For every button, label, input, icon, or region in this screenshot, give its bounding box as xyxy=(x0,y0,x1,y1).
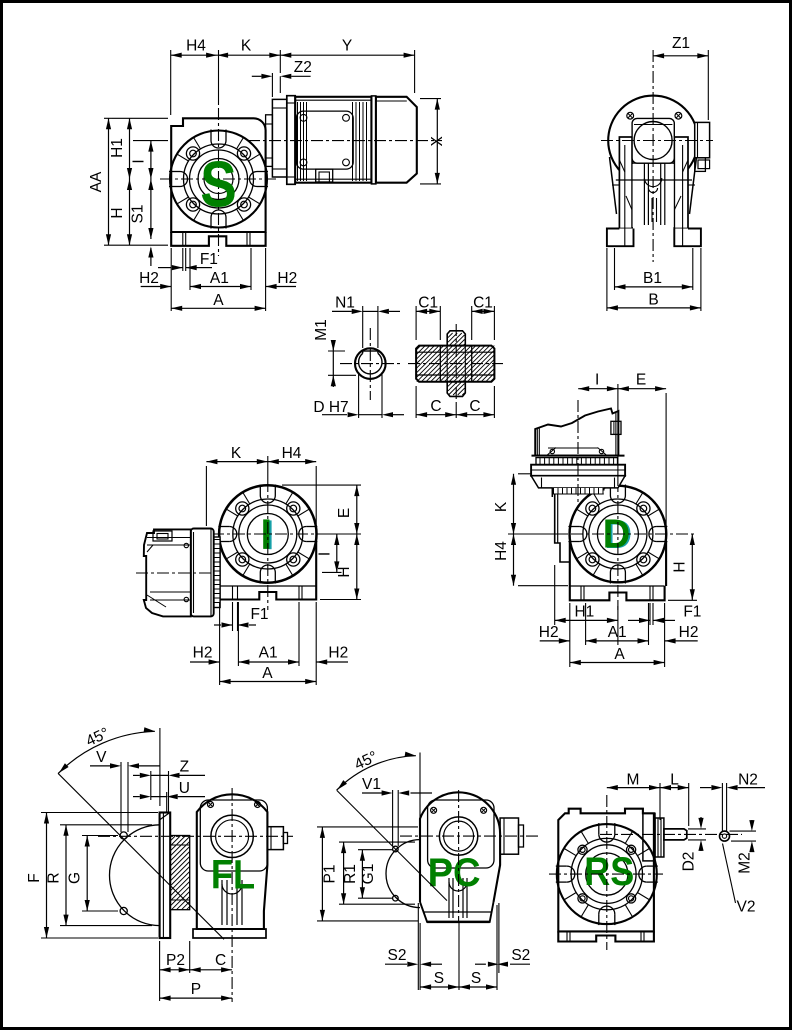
svg-text:H: H xyxy=(109,207,126,218)
svg-text:V1: V1 xyxy=(362,776,381,793)
svg-text:H4: H4 xyxy=(186,38,206,55)
svg-text:K: K xyxy=(231,445,242,462)
svg-text:Y: Y xyxy=(342,38,352,55)
svg-text:E: E xyxy=(336,508,353,518)
svg-text:H4: H4 xyxy=(493,541,510,561)
svg-text:L: L xyxy=(670,772,679,789)
svg-text:C: C xyxy=(215,952,226,969)
svg-text:G1: G1 xyxy=(360,864,377,885)
svg-text:P2: P2 xyxy=(166,952,185,969)
svg-text:K: K xyxy=(241,38,252,55)
svg-text:S: S xyxy=(434,970,444,987)
svg-text:C: C xyxy=(469,398,480,415)
svg-text:C1: C1 xyxy=(418,295,438,312)
svg-text:S2: S2 xyxy=(388,947,407,964)
svg-text:H2: H2 xyxy=(277,270,297,287)
svg-text:C1: C1 xyxy=(473,295,493,312)
svg-text:H1: H1 xyxy=(109,138,126,158)
svg-text:A1: A1 xyxy=(608,624,627,641)
svg-text:F1: F1 xyxy=(200,251,218,268)
svg-text:B: B xyxy=(648,292,658,309)
svg-text:H2: H2 xyxy=(328,645,348,662)
svg-text:G: G xyxy=(67,872,84,884)
svg-text:H: H xyxy=(336,566,353,577)
svg-text:H2: H2 xyxy=(193,645,213,662)
svg-text:S1: S1 xyxy=(130,205,147,224)
svg-text:F1: F1 xyxy=(250,606,268,623)
svg-text:S2: S2 xyxy=(511,947,530,964)
svg-text:D H7: D H7 xyxy=(313,399,348,416)
svg-text:D2: D2 xyxy=(681,852,698,872)
svg-text:P: P xyxy=(191,981,201,998)
svg-text:M2: M2 xyxy=(736,852,753,874)
svg-text:N1: N1 xyxy=(335,295,355,312)
svg-text:AA: AA xyxy=(88,171,105,192)
svg-text:I: I xyxy=(131,159,148,163)
svg-text:A: A xyxy=(614,646,625,663)
svg-text:S: S xyxy=(200,148,237,221)
svg-text:V: V xyxy=(96,749,107,766)
svg-text:N2: N2 xyxy=(738,772,758,789)
svg-text:E: E xyxy=(636,372,646,389)
svg-text:R: R xyxy=(46,872,63,883)
svg-text:H1: H1 xyxy=(574,604,594,621)
svg-text:F: F xyxy=(26,873,43,882)
svg-text:H2: H2 xyxy=(539,624,559,641)
svg-text:H4: H4 xyxy=(282,445,302,462)
svg-text:R1: R1 xyxy=(342,864,359,884)
svg-text:A1: A1 xyxy=(259,645,278,662)
svg-text:K: K xyxy=(493,501,510,512)
svg-text:A: A xyxy=(213,292,224,309)
svg-text:P1: P1 xyxy=(322,865,339,884)
svg-text:F1: F1 xyxy=(683,604,701,621)
svg-text:FL: FL xyxy=(211,852,255,898)
svg-text:Z2: Z2 xyxy=(294,59,312,76)
svg-text:S: S xyxy=(471,970,481,987)
svg-text:RS: RS xyxy=(584,850,634,894)
svg-text:H2: H2 xyxy=(679,624,699,641)
svg-text:I: I xyxy=(316,552,333,556)
svg-text:M: M xyxy=(627,772,640,789)
svg-text:A: A xyxy=(262,665,273,682)
svg-text:C: C xyxy=(430,398,441,415)
svg-text:I: I xyxy=(595,372,599,389)
svg-text:U: U xyxy=(179,780,190,797)
svg-text:H: H xyxy=(672,561,689,572)
svg-text:B1: B1 xyxy=(643,270,662,287)
svg-text:X: X xyxy=(429,135,446,146)
svg-text:Z: Z xyxy=(180,759,189,776)
svg-text:M1: M1 xyxy=(313,319,330,341)
svg-text:H2: H2 xyxy=(139,270,159,287)
svg-text:Z1: Z1 xyxy=(672,35,690,52)
svg-text:V2: V2 xyxy=(737,899,756,916)
svg-text:A1: A1 xyxy=(210,270,229,287)
